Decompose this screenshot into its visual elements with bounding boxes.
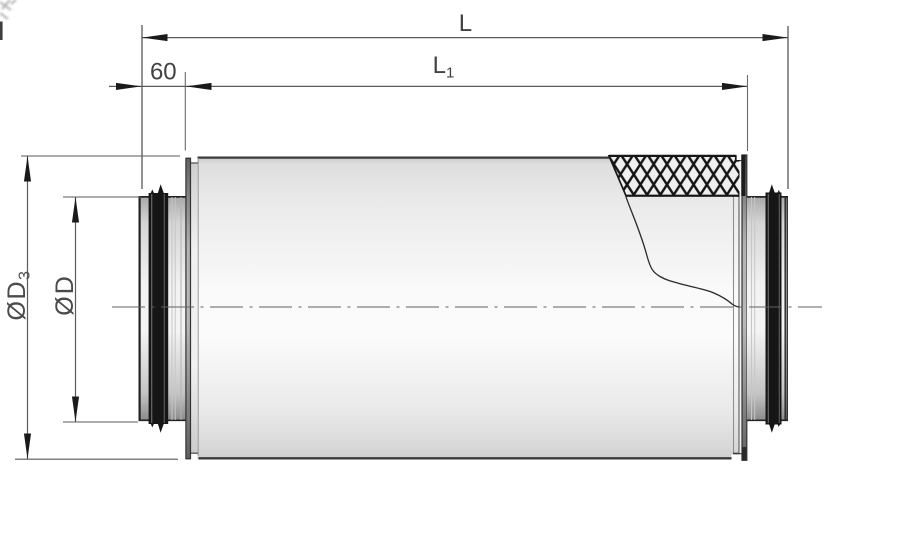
svg-text:L: L — [459, 10, 472, 37]
svg-text:L1: L1 — [433, 52, 455, 82]
svg-text:ØD: ØD — [51, 274, 79, 316]
svg-text:60: 60 — [150, 59, 177, 86]
svg-text:ØD3: ØD3 — [3, 270, 34, 321]
